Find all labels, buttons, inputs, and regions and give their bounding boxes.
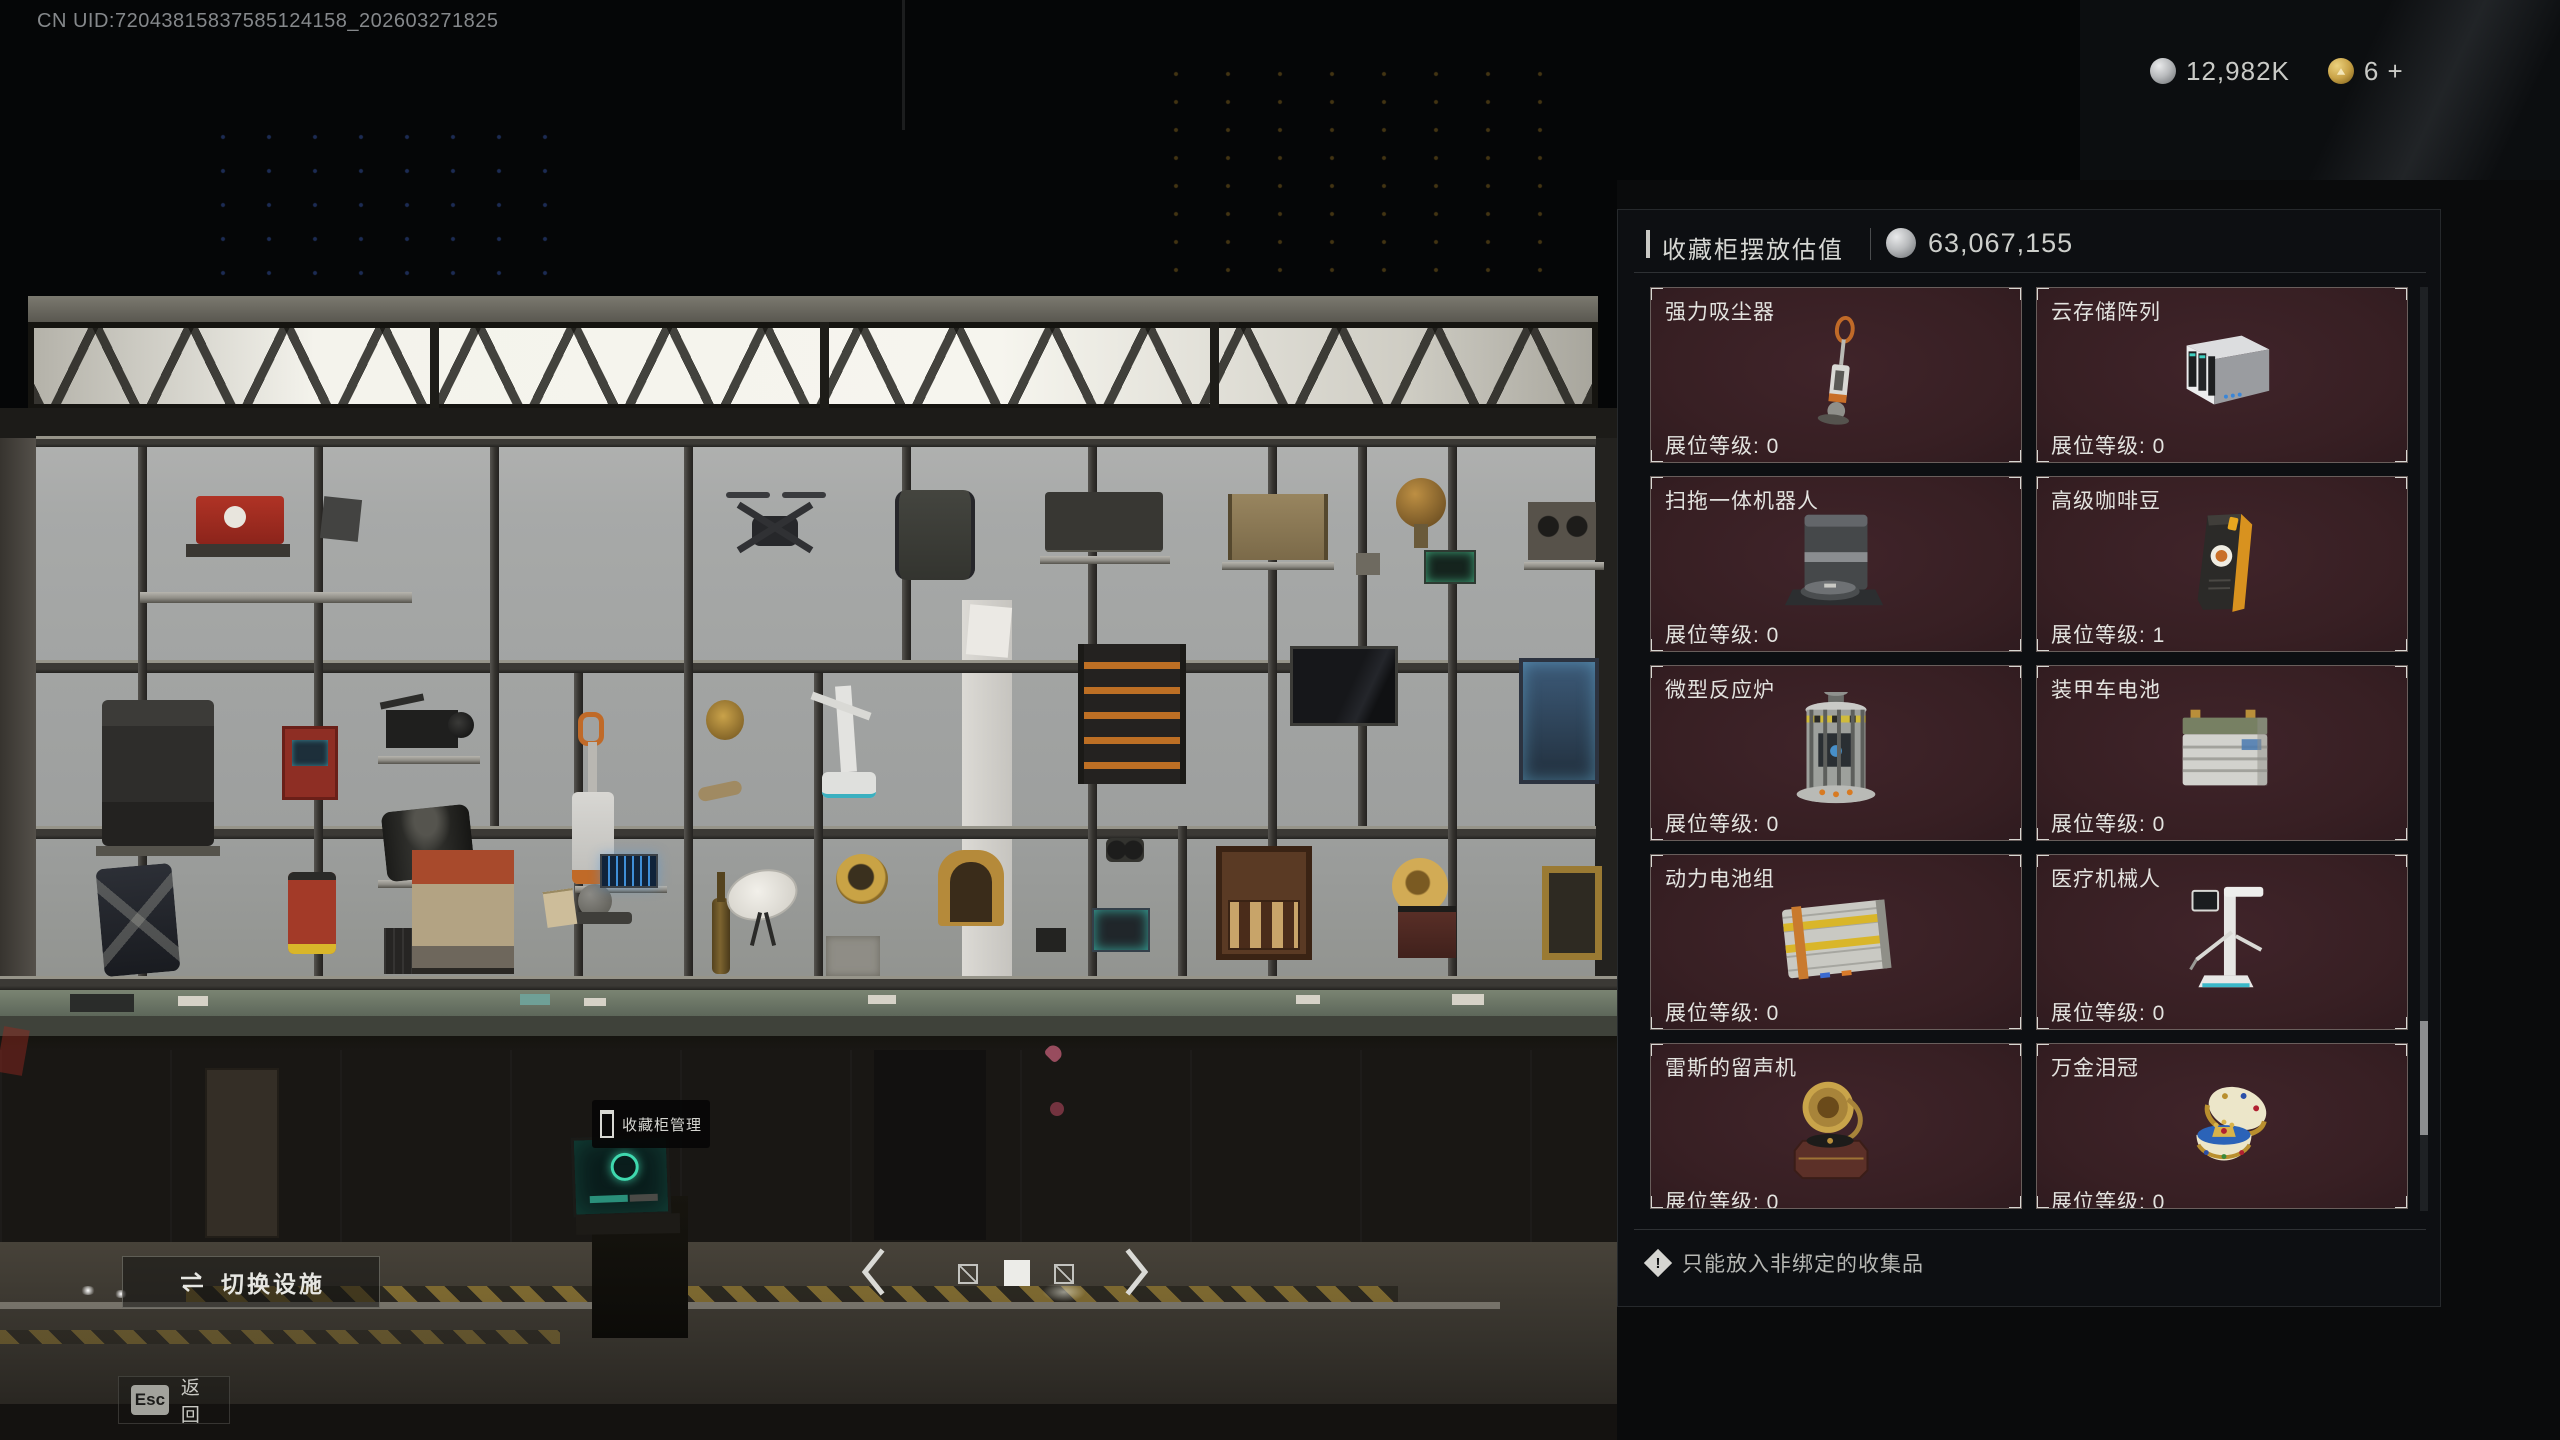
item-level-value: 0 [2153,435,2166,458]
gold-coin-triangle [2337,68,2345,75]
switch-facility-label: 切换设施 [221,1265,325,1299]
item-level-value: 0 [2153,1191,2166,1209]
shelf-item-drone-prop [782,492,826,498]
corner-mark [2395,287,2408,300]
shelf-item-bottle [712,898,730,974]
item-level: 展位等级: 0 [1665,619,1779,649]
corner-mark [2009,828,2022,841]
white-column [962,600,1012,988]
header-separator [1870,228,1871,260]
shelf-item-vacuum-handle [578,712,604,746]
skylight-divider [820,322,829,410]
corner-mark [2009,854,2022,867]
switch-facility-button[interactable]: 切换设施 [122,1256,380,1308]
shelf-board [1524,562,1604,570]
item-level-label: 展位等级: [2051,1191,2153,1209]
corner-mark [2395,1043,2408,1056]
corner-mark [2036,1043,2049,1056]
item-level: 展位等级: 0 [2051,430,2165,460]
corner-mark [2395,1196,2408,1209]
value-coin-icon [1886,228,1916,258]
corner-mark [2036,1017,2049,1030]
currency-bar: 12,982K 6 + [2150,54,2404,88]
corner-mark [1650,287,1663,300]
terminal-progress-track [630,1194,658,1202]
item-image [1651,314,2021,432]
shelf-item-jukebox-arch [950,862,992,922]
shelf-item-camcorder-lens [448,712,474,738]
corner-mark [1650,476,1663,489]
item-image [2037,881,2407,999]
corner-mark [2009,450,2022,463]
gold-coin-icon [2328,58,2354,84]
floor-bottom-dark [0,1404,1617,1440]
item-level: 展位等级: 0 [1665,997,1779,1027]
corner-mark [2009,287,2022,300]
shelf-item-brass-horn [706,700,744,740]
item-card-vehicle-battery[interactable]: 装甲车电池 展位等级: 0 [2036,665,2408,841]
item-image [2037,1070,2407,1188]
item-card-coffee-bag[interactable]: 高级咖啡豆 展位等级: 1 [2036,476,2408,652]
corner-mark [2395,665,2408,678]
corner-mark [2009,1017,2022,1030]
shelf-board [140,592,412,603]
item-image [1651,1070,2021,1188]
corner-mark [2395,450,2408,463]
corner-mark [2395,828,2408,841]
shelf-item-plate [320,496,362,542]
item-level: 展位等级: 0 [2051,997,2165,1027]
counter-paper [1296,995,1320,1004]
item-image [2037,692,2407,810]
shelf-item-appliance [102,700,214,846]
corner-mark [1650,1043,1663,1056]
item-image [1651,692,2021,810]
item-level-label: 展位等级: [1665,1002,1767,1025]
shelf-rail [36,436,1596,447]
skylight-divider [1210,322,1219,410]
skylight [28,322,1598,410]
header-divider [1634,272,2426,273]
shelf-item-pallet-stack [1078,644,1186,784]
warning-icon: ! [1644,1249,1672,1277]
corner-mark [2036,450,2049,463]
corner-mark [2009,1043,2022,1056]
shelf-item-gold-plate [836,854,888,904]
shelf-item-small-camera [1036,928,1066,952]
shelf-item-parchment [543,888,578,928]
cornice [0,408,1617,438]
shelf-item-reel-recorder [1528,502,1596,560]
counter-shadow [0,1036,1617,1050]
warning-exclamation: ! [1648,1253,1668,1273]
shelf-item-flask [95,863,180,977]
terminal-tooltip: 收藏柜管理 [592,1100,710,1148]
item-card-gramophone[interactable]: 雷斯的留声机 展位等级: 0 [1650,1043,2022,1209]
uid-text: CN UID:72043815837585124158_202603271825 [37,10,499,33]
floor-light [80,1286,96,1295]
shelf-item-small-box [1356,553,1380,575]
shelf-item-red-device-base [186,544,290,557]
shelf-item-vacuum-pole [588,742,597,794]
shelf-item-robot-base [822,772,876,798]
shelf-board [1222,562,1334,570]
corner-mark [2036,854,2049,867]
item-level-label: 展位等级: [2051,624,2153,647]
shelf-post [490,447,499,826]
page-indicator-3[interactable] [1054,1264,1074,1284]
item-level: 展位等级: 0 [2051,1186,2165,1209]
esc-hint[interactable]: Esc 返回 [118,1376,230,1424]
ceiling-beam [28,296,1598,324]
item-level-value: 0 [1767,1002,1780,1025]
item-level-value: 0 [1767,624,1780,647]
item-card-medical-robot[interactable]: 医疗机械人 展位等级: 0 [2036,854,2408,1030]
item-level-label: 展位等级: [2051,813,2153,836]
page-indicator-1[interactable] [958,1264,978,1284]
shelf-item-bottle-neck [717,872,725,902]
shelf-item-backpack [895,490,975,580]
shelf-item-white-paper [966,604,1012,657]
shelf-board [378,756,480,764]
next-page-button[interactable] [1124,1248,1160,1298]
shelf-item-teal-device [1092,908,1150,952]
item-level-value: 0 [2153,813,2166,836]
corner-mark [1650,828,1663,841]
item-level-label: 展位等级: [2051,1002,2153,1025]
counter-front [0,1016,1617,1036]
item-image [2037,503,2407,621]
shelf-item-chessboard-squares [1228,900,1300,950]
item-level-label: 展位等级: [1665,1191,1767,1209]
back-label: 返回 [181,1373,217,1427]
counter-paper [178,996,208,1006]
shelf-post [1358,447,1367,826]
shelf-item-stone-relief [826,936,880,976]
counter-paper [520,994,550,1005]
item-image [1651,503,2021,621]
corner-mark [2036,665,2049,678]
shelf-item-green-screen [1424,550,1476,584]
hazard-stripe [0,1330,560,1344]
counter-paper [70,994,134,1012]
item-level-value: 0 [2153,1002,2166,1025]
item-card-micro-reactor[interactable]: 微型反应炉 [1650,665,2022,841]
shelf-item-camcorder [386,710,458,748]
page-indicator-2-active[interactable] [1004,1260,1030,1286]
shelf-item-tv [1290,646,1398,726]
under-counter-cabinet [874,1050,986,1240]
corner-mark [2036,476,2049,489]
corner-mark [1650,1017,1663,1030]
shelf-item-flat-case [1045,492,1163,552]
corner-mark [2009,476,2022,489]
item-level: 展位等级: 0 [1665,808,1779,838]
terminal-keyboard [576,1213,680,1235]
corner-mark [2395,1017,2408,1030]
shelf-item-red-handheld [288,872,336,954]
server-rack-lights-mid [1150,60,1550,290]
corner-mark [2036,639,2049,652]
shelf-item-blue-server [600,854,658,888]
panel-note-text: 只能放入非绑定的收集品 [1682,1248,1924,1278]
corner-mark [2395,639,2408,652]
item-level-label: 展位等级: [2051,435,2153,458]
swap-icon [177,1271,207,1293]
corner-mark [1650,665,1663,678]
wall-left-edge [0,438,36,990]
item-level-label: 展位等级: [1665,813,1767,836]
counter-top [0,990,1617,1016]
item-level: 展位等级: 0 [1665,430,1779,460]
shelf-post [814,673,823,976]
shelf-post [1178,826,1187,976]
ceiling-seam [902,0,905,130]
corner-mark [2036,287,2049,300]
chevron-right-icon [1124,1248,1152,1296]
item-level-value: 0 [1767,813,1780,836]
panel-scrollbar[interactable] [2420,287,2428,1211]
counter-paper [868,995,896,1004]
decal-round [1050,1102,1064,1116]
shelf-item-drone-prop [726,492,770,498]
shelf-item-bronze-globe [1396,478,1446,528]
item-level: 展位等级: 1 [2051,619,2165,649]
item-level-label: 展位等级: [1665,624,1767,647]
item-level: 展位等级: 0 [1665,1186,1779,1209]
shelf-board [1040,556,1170,564]
silver-currency-value: 12,982K [2186,56,2290,87]
prev-page-button[interactable] [858,1248,894,1298]
collection-value: 63,067,155 [1928,228,2073,259]
game-screen: 收藏柜管理 CN UID:72043815837585124158_202603… [0,0,2560,1440]
shelf-post [684,447,693,976]
shelf-item-blue-cabinet [1519,658,1599,784]
shelf-item-crate [1228,494,1328,560]
corner-mark [2009,665,2022,678]
item-level: 展位等级: 0 [2051,808,2165,838]
shelf-rail [0,976,1617,990]
counter-paper [584,998,606,1006]
shelf-item-appliance-tray [96,846,220,856]
footer-divider [1634,1229,2426,1230]
item-card-robot-mop[interactable]: 扫拖一体机器人 展位等级: 0 [1650,476,2022,652]
terminal-tooltip-label: 收藏柜管理 [622,1114,702,1135]
corner-mark [2009,1196,2022,1209]
item-level-value: 0 [1767,1191,1780,1209]
corner-mark [2009,639,2022,652]
item-card-nas[interactable]: 云存储阵列 展位等级: 0 [2036,287,2408,463]
panel-header: 收藏柜摆放估值 63,067,155 [1618,224,2442,268]
shelf-item-vintage-meter [412,850,514,974]
corner-mark [2036,828,2049,841]
item-image [2037,314,2407,432]
item-level-label: 展位等级: [1665,435,1767,458]
under-counter-door [205,1068,279,1238]
skylight-divider [430,322,439,410]
item-card-power-pack[interactable]: 动力电池组 [1650,854,2022,1030]
item-card-jeweled-egg-crown[interactable]: 万金泪冠 [2036,1043,2408,1209]
silver-coin-icon [2150,58,2176,84]
ceiling-right-structure [2080,0,2560,180]
shelf-item-gramophone-base [1398,906,1456,958]
counter-paper [1452,994,1484,1005]
display-case-icon [600,1110,614,1138]
shelf-item-red-radio-screen [292,740,328,766]
shelf-item-binoculars [1106,838,1144,862]
corner-mark [1650,639,1663,652]
scrollbar-thumb[interactable] [2420,1021,2428,1135]
corner-mark [2395,854,2408,867]
corner-mark [2395,476,2408,489]
panel-title: 收藏柜摆放估值 [1662,230,1844,265]
chevron-left-icon [858,1248,886,1296]
corner-mark [2036,1196,2049,1209]
collection-panel: 收藏柜摆放估值 63,067,155 强力吸尘器 [1617,209,2441,1307]
terminal-progress-bar [590,1195,628,1203]
shelf-item-gold-frame [1542,866,1602,960]
gold-currency-value: 6 + [2364,56,2404,87]
item-image [1651,881,2021,999]
terminal-ring-icon [610,1152,639,1181]
shelf-item-globe-stand [1414,524,1428,548]
item-level-value: 0 [1767,435,1780,458]
esc-key: Esc [131,1385,169,1415]
shelf-post [1448,447,1457,976]
corner-mark [1650,1196,1663,1209]
item-card-vacuum[interactable]: 强力吸尘器 展位等级: 0 [1650,287,2022,463]
panel-note: ! 只能放入非绑定的收集品 [1648,1248,1924,1278]
corner-mark [1650,854,1663,867]
header-accent-bar [1646,230,1650,258]
page-indicator-glow [1042,1282,1086,1302]
item-level-value: 1 [2153,624,2166,647]
shelf-item-red-device-mark [224,506,246,528]
server-rack-lights-left [200,120,580,310]
corner-mark [1650,450,1663,463]
